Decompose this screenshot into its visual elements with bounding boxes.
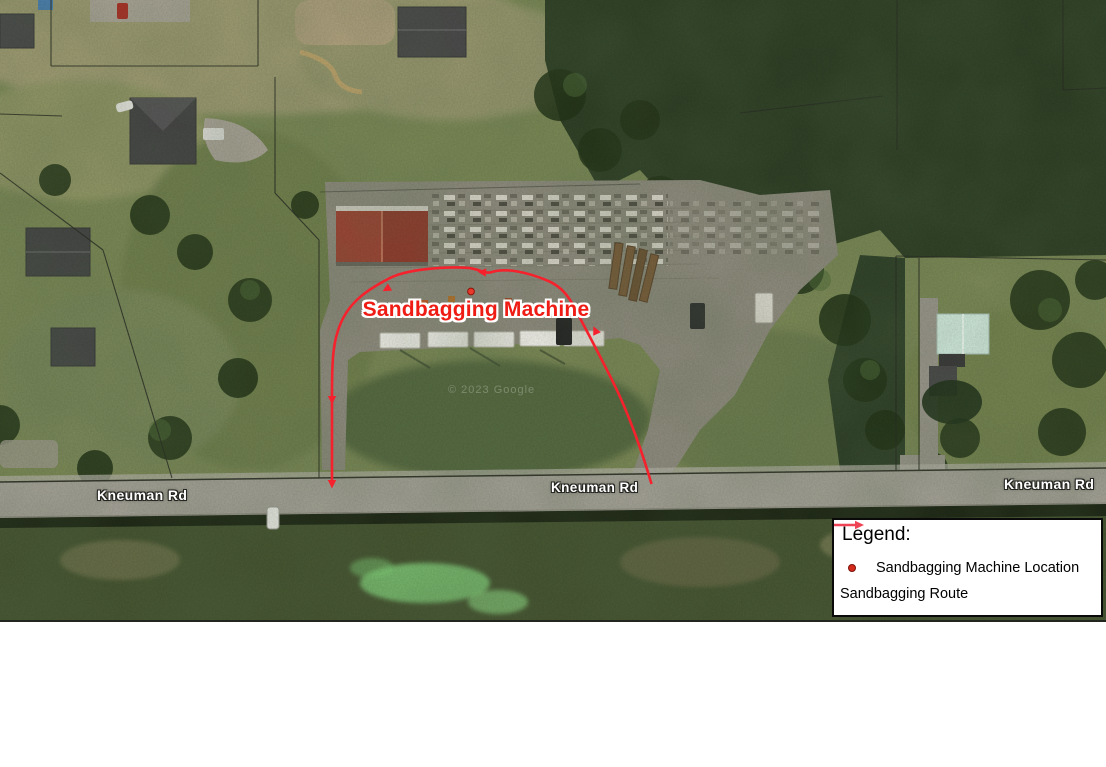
machine-label: Sandbagging Machine [360,298,592,322]
imagery-watermark: © 2023 Google [448,384,535,396]
road-label-right: Kneuman Rd [1004,476,1094,492]
route-arrow-icon [834,520,864,530]
machine-dot-icon [848,564,856,572]
legend-item-label: Sandbagging Route [840,586,968,602]
legend-item-machine: Sandbagging Machine Location [834,555,1101,581]
road-label-center: Kneuman Rd [551,480,638,495]
machine-location-dot [468,288,475,295]
map-footer: 0 100 200 ft [0,622,1106,767]
map-sheet: Kneuman Rd Kneuman Rd Kneuman Rd Sandbag… [0,0,1106,767]
aerial-map: Kneuman Rd Kneuman Rd Kneuman Rd Sandbag… [0,0,1106,622]
legend-item-label: Sandbagging Machine Location [876,560,1079,576]
legend-title: Legend: [842,524,1101,546]
legend-box: Legend: Sandbagging Machine Location San… [832,518,1103,617]
road-label-left: Kneuman Rd [97,487,187,503]
legend-item-route: Sandbagging Route [834,581,1101,607]
